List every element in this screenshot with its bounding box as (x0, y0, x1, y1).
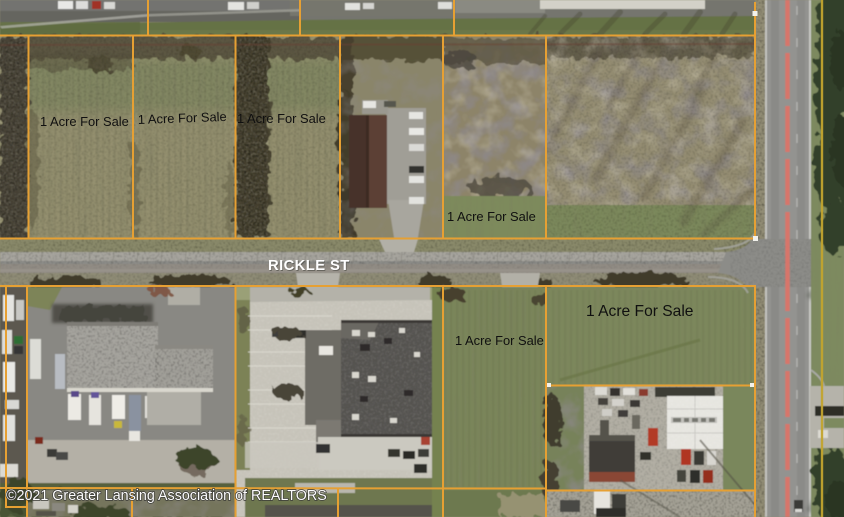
svg-text:1 Acre For Sale: 1 Acre For Sale (586, 303, 693, 320)
svg-text:RICKLE ST: RICKLE ST (268, 258, 350, 274)
svg-text:1 Acre For Sale: 1 Acre For Sale (138, 109, 227, 127)
svg-text:1 Acre For Sale: 1 Acre For Sale (447, 209, 536, 224)
svg-text:1 Acre For Sale: 1 Acre For Sale (40, 114, 129, 129)
svg-text:©2021 Greater Lansing Associat: ©2021 Greater Lansing Association of REA… (6, 488, 327, 504)
svg-text:1 Acre For Sale: 1 Acre For Sale (237, 111, 326, 126)
svg-text:1 Acre For Sale: 1 Acre For Sale (455, 333, 544, 348)
